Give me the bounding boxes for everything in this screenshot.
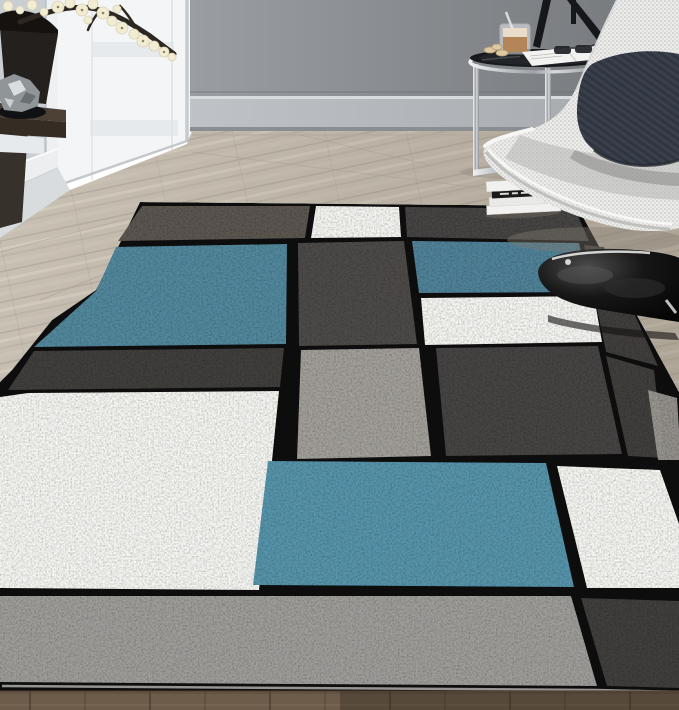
foam <box>503 28 527 37</box>
latte <box>503 36 527 52</box>
rug-block-white-large <box>0 391 279 590</box>
table-leg-left <box>473 64 479 174</box>
rug-block-blue-large <box>253 461 574 587</box>
rug-block-charcoal-large <box>436 346 622 456</box>
rug-block-gray-light <box>297 348 431 459</box>
dark-floor-strip <box>0 691 679 710</box>
rug-block-band-charcoal <box>8 348 284 390</box>
rug-block-gray-column <box>298 241 417 346</box>
rug-block-top-white <box>311 206 401 238</box>
rug-block-top-taupe <box>118 206 310 241</box>
living-room-scene <box>0 0 679 710</box>
pillow <box>577 51 679 165</box>
rug-block-front-gray <box>0 596 597 686</box>
